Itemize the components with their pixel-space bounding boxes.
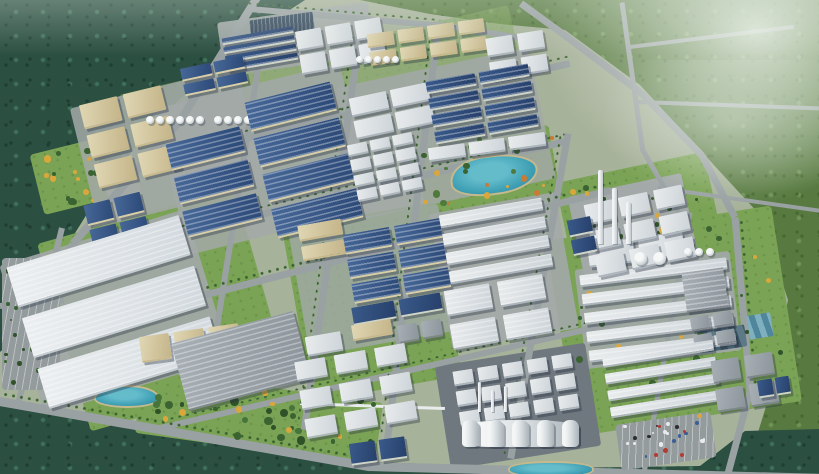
trees-northwest-garden-dot (52, 172, 56, 176)
cement-plant-units-building (658, 210, 691, 236)
trees-northwest-garden-dot (87, 157, 91, 161)
silo-row-tank (537, 420, 554, 447)
tank-farm-north-tank (392, 56, 399, 63)
silo-plant-units-building (526, 357, 548, 375)
silo-row (462, 420, 579, 447)
cars-southeast-parking-dot (623, 425, 627, 429)
trees-west-parking-dot (10, 319, 13, 322)
tank-farm-north-tank (374, 56, 381, 63)
pond-south (508, 461, 594, 474)
trees-south-grove-dot (286, 427, 292, 433)
silo-plant-units-building (505, 381, 527, 399)
silo-plant-units-building (456, 389, 478, 407)
trees-south-grove-dot (271, 425, 276, 430)
tank-farm-west-b-tank (214, 116, 222, 124)
trees-lake-park-dot (433, 190, 440, 197)
substation-building (397, 322, 420, 343)
south-mid-units-building (374, 343, 408, 368)
trees-right-section-dot (578, 316, 582, 320)
trees-right-section-dot (697, 414, 701, 418)
trees-northwest-garden-dot (44, 173, 48, 177)
cement-tank-row (684, 248, 714, 256)
trees-west-parking-dot (13, 333, 17, 337)
cement-tank-row-tank (684, 248, 692, 256)
tank-farm-west-a-tank (156, 116, 164, 124)
trees-south-grove-dot (289, 405, 295, 411)
cars-southeast-parking-dot (675, 425, 679, 429)
trees-south-grove-dot (266, 408, 272, 414)
cars-southeast-parking-dot (703, 438, 706, 441)
tank-farm-west-b-tank (224, 116, 232, 124)
trees-right-section-dot (753, 255, 757, 259)
dormitory-grid-building (350, 156, 372, 172)
trees-west-parking-dot (11, 380, 16, 385)
haze-top-atmosphere (0, 0, 819, 56)
trees-right-section-dot (740, 294, 743, 297)
trees-lake-park-dot (440, 200, 447, 207)
southeast-east-grid-building (710, 357, 741, 384)
silo-plant-units-building (452, 369, 474, 387)
tank-farm-north (356, 56, 399, 63)
trees-south-grove-dot (242, 417, 248, 423)
southeast-solar-pair-building (774, 376, 791, 396)
trees-south-grove-dot (338, 434, 342, 438)
trees-lake-park-dot (421, 153, 426, 158)
trees-south-grove-dot (290, 413, 296, 419)
trees-south-grove-dot (155, 394, 162, 401)
cars-southeast-parking-dot (695, 421, 699, 425)
left-annex-row-building (139, 333, 172, 363)
dormitory-grid-building (347, 141, 369, 157)
cars-southeast-parking-dot (659, 442, 664, 447)
cars-southeast-parking-dot (633, 442, 636, 445)
trees-lake-park-dot (463, 169, 468, 174)
trees-south-grove-dot (331, 439, 336, 444)
cars-southeast-parking-dot (654, 453, 658, 457)
cement-solar-panels-building (567, 216, 594, 237)
southeast-east-grid-building (744, 351, 775, 378)
trees-south-grove-dot (165, 401, 173, 409)
cement-cooling-towers-tank (634, 252, 647, 265)
cars-southeast-parking-dot (663, 430, 667, 434)
trees-lake-park-dot (463, 163, 470, 170)
trees-west-parking-dot (17, 361, 22, 366)
trees-northwest-garden-dot (76, 177, 80, 181)
tank-farm-west-a-tank (186, 116, 194, 124)
northwest-cream-factories-building (86, 126, 130, 159)
tank-farm-north-tank (383, 56, 390, 63)
trees-south-grove-dot (297, 436, 305, 444)
cement-tank-row-tank (695, 248, 703, 256)
dormitory-grid-building (392, 132, 414, 148)
south-mid-units-building (294, 357, 328, 382)
trees-south-grove-dot (180, 402, 184, 406)
dormitory-grid-building (376, 166, 398, 182)
mid-cream-rows (297, 218, 347, 261)
trees-northwest-garden-dot (68, 198, 75, 205)
haze-right-drift (600, 60, 819, 210)
substation-building (420, 318, 443, 339)
trees-south-grove-dot (264, 417, 273, 426)
dormitory-grid-building (369, 137, 391, 153)
trees-west-parking-dot (4, 353, 7, 356)
silo-row-tank (462, 420, 479, 447)
central-south-blue-rows-building (347, 252, 396, 280)
cars-southeast-parking-dot (666, 422, 670, 426)
cars-southeast-parking-dot (645, 455, 647, 457)
right-east-big-gray (681, 267, 728, 312)
trees-lake-park-dot (506, 185, 509, 188)
cement-tank-row-tank (706, 248, 714, 256)
trees-south-grove-dot (295, 428, 301, 434)
southeast-east-grid-building (715, 385, 746, 412)
dormitory-grid-building (353, 171, 375, 187)
trees-south-grove-dot (280, 409, 288, 417)
tank-farm-north-tank (356, 56, 363, 63)
south-solar-pair-building (378, 436, 407, 461)
trees-lake-park-dot (444, 167, 448, 171)
treatment-blocks-building (712, 311, 733, 328)
trees-right-section-dot (766, 278, 772, 284)
cement-cooling-towers-tank (653, 252, 666, 265)
trees-lake-park-dot (485, 183, 489, 187)
trees-lake-park-dot (521, 175, 527, 181)
trees-west-parking-dot (6, 302, 10, 306)
tank-farm-west-a-tank (166, 116, 174, 124)
trees-west-parking-dot (4, 360, 7, 363)
south-mid-units-building (299, 385, 333, 410)
cars-southeast-parking-dot (626, 442, 629, 445)
cars-southeast-parking-dot (680, 453, 684, 457)
tank-farm-west-a-tank (176, 116, 184, 124)
trees-south-grove-dot (213, 407, 218, 412)
trees-right-section-dot (716, 236, 722, 242)
tank-farm-west-a-tank (146, 116, 154, 124)
dormitory-grid-building (398, 162, 420, 178)
trees-lake-park-dot (447, 202, 450, 205)
cars-southeast-parking (622, 420, 710, 460)
trees-south-grove-dot (236, 406, 243, 413)
trees-lake-park-dot (484, 192, 491, 199)
tank-farm-west-a (146, 116, 204, 124)
silo-plant-units-building (508, 401, 530, 419)
silo-plant-units-building (554, 373, 576, 391)
trees-lake-park-dot (511, 169, 516, 174)
tank-farm-west-b-tank (234, 116, 242, 124)
silo-plant-stacks-chimney (504, 386, 507, 412)
dormitory-grid-building (395, 147, 417, 163)
cement-cooling-towers (634, 252, 666, 265)
trees-right-section-dot (576, 356, 583, 363)
right-east-big-gray-building (681, 267, 728, 312)
trees-right-section-dot (778, 350, 783, 355)
silo-plant-units-building (551, 353, 573, 371)
silo-plant-units-building (477, 365, 499, 383)
south-mid-units-building (339, 378, 373, 403)
trees-south-grove-dot (163, 416, 169, 422)
trees-lake-park-dot (434, 170, 440, 176)
trees-northwest-garden-dot (83, 189, 89, 195)
tank-farm-west-a-tank (196, 116, 204, 124)
south-mid-units-building (379, 371, 413, 396)
trees-south-grove-dot (153, 401, 160, 408)
central-south-blue-rows-building (398, 243, 447, 271)
silo-plant-units-building (557, 393, 579, 411)
tank-farm-north-tank (365, 56, 372, 63)
treatment-blocks-building (690, 315, 711, 332)
trees-lake-park-dot (423, 200, 428, 205)
cars-southeast-parking-dot (647, 435, 651, 439)
silo-plant-stacks (478, 382, 507, 412)
southeast-solar-pair-building (757, 378, 774, 398)
trees-right-section-dot (745, 330, 748, 333)
trees-south-grove-dot (277, 434, 284, 441)
cars-southeast-parking-dot (652, 432, 654, 434)
silo-row-tank (562, 420, 579, 447)
south-mid-units-building (334, 350, 368, 375)
trees-south-grove-dot (270, 402, 274, 406)
trees-northwest-garden-dot (44, 155, 51, 162)
silo-plant-units-building (533, 397, 555, 415)
south-mid-units-building (384, 400, 418, 425)
trees-south-grove-dot (155, 409, 160, 414)
cars-southeast-parking-dot (663, 448, 668, 453)
silo-row-tank (512, 420, 529, 447)
trees-west-parking-dot (22, 348, 26, 352)
cars-southeast-parking-dot (678, 434, 681, 437)
silo-plant-stacks-chimney (478, 382, 481, 412)
trees-northwest-garden-dot (56, 151, 61, 156)
silo-plant-stacks-chimney (491, 390, 494, 412)
cars-southeast-parking-dot (672, 439, 676, 443)
trees-south-grove-dot (234, 432, 242, 440)
cars-southeast-parking-dot (658, 425, 660, 427)
silo-plant-units-building (502, 361, 524, 379)
trees-northwest-garden-dot (91, 199, 94, 202)
cars-southeast-parking-dot (633, 436, 637, 440)
silo-plant-units-building (530, 377, 552, 395)
dormitory-grid-building (372, 151, 394, 167)
south-solar-pair-building (349, 440, 378, 465)
silo-row-tank (487, 420, 504, 447)
industrial-park-aerial-render (0, 0, 819, 474)
trees-northwest-garden-dot (73, 170, 77, 174)
trees-south-grove-dot (179, 409, 186, 416)
